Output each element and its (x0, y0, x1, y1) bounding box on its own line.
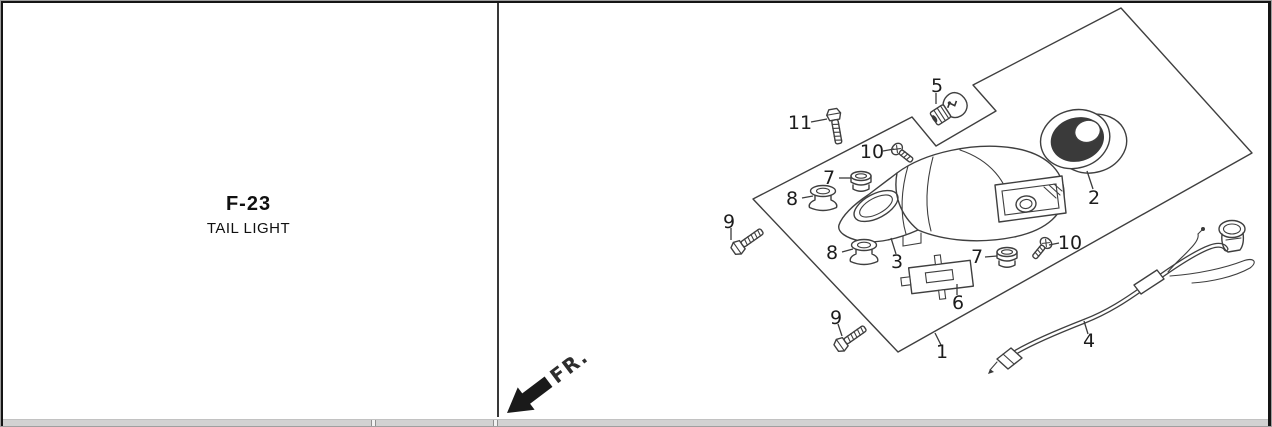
part-7-grommet-bottom (997, 248, 1017, 268)
part-8-grommet-top (809, 186, 837, 211)
part-11-bolt (826, 108, 846, 145)
part-10-screw-top (889, 141, 915, 165)
part-number-label: 1 (936, 341, 948, 363)
part-number-label: 8 (786, 188, 798, 210)
table-row-band (1, 419, 1271, 426)
part-8-grommet-bottom (850, 240, 878, 265)
exploded-parts-diagram: 511107829837106914 FR. (0, 0, 1272, 427)
table-cell-separator (493, 420, 498, 426)
part-number-label: 9 (830, 307, 842, 329)
panel-divider (497, 3, 499, 417)
part-number-label: 7 (823, 167, 835, 189)
part-10-screw-right (1029, 235, 1054, 261)
part-number-label: 4 (1083, 330, 1095, 352)
part-7-grommet-top (851, 172, 871, 192)
fr-label: FR. (545, 344, 593, 388)
fr-arrow-icon (499, 371, 557, 425)
part-number-label: 10 (860, 141, 884, 163)
part-number-label: 10 (1058, 232, 1082, 254)
parts-catalog-page: F-23 TAIL LIGHT (0, 0, 1272, 427)
table-cell-separator (371, 420, 376, 426)
part-number-label: 3 (891, 251, 903, 273)
part-number-label: 8 (826, 242, 838, 264)
part-number-label: 5 (931, 75, 943, 97)
part-number-label: 11 (788, 112, 812, 134)
fr-direction-indicator: FR. (499, 343, 595, 425)
part-number-label: 2 (1088, 187, 1100, 209)
part-number-label: 6 (952, 292, 964, 314)
part-number-label: 9 (723, 211, 735, 233)
part-number-label: 7 (971, 246, 983, 268)
part-4-wire-harness (988, 221, 1254, 375)
